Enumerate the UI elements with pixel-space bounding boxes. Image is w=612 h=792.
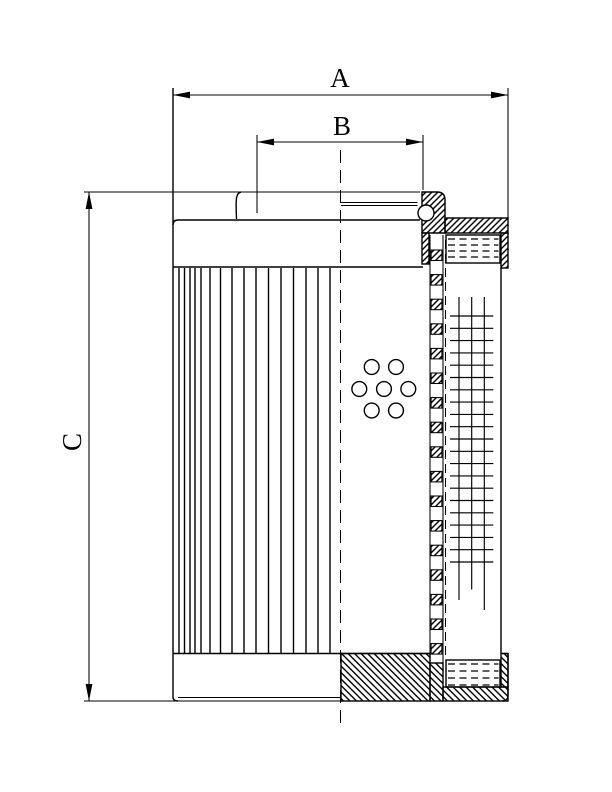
perforation-hole [352,382,367,397]
core-wall-segment [431,299,442,310]
perforation-hole [401,382,416,397]
core-wall-segment [431,521,442,532]
top-fitting-right-wall [501,233,508,268]
core-wall-segment [431,619,442,630]
perforation-holes [352,360,416,418]
thread-lines-top [448,239,499,257]
bottom-cap-hatch-under-bore [443,687,508,701]
bottom-cap-hatch-right-wall [501,654,508,688]
perforation-hole [377,382,392,397]
dim-c-arrow-bottom [86,684,93,701]
body-bottom-left-corner [173,697,178,701]
core-wall-segment [431,447,442,458]
bottom-cap-hatch-under-core [430,663,443,701]
section-view [341,192,508,701]
core-wall-segment [431,471,442,482]
core-tube [430,235,446,663]
perforation-hole [364,360,379,375]
core-wall-segment [431,594,442,605]
core-tube-wall-segments [431,250,442,654]
dim-b-arrow-left [257,139,274,146]
top-flange [445,218,508,233]
perforation-hole [364,403,379,418]
dim-a-arrow-left [173,92,190,99]
core-wall-segment [431,348,442,359]
bottom-cap-hatch-left [341,654,430,702]
core-wall-segment [431,250,442,261]
pleated-media [179,268,330,654]
drawing-page: A B C [0,0,612,792]
perforation-hole [389,403,404,418]
dimension-b-label: B [333,111,351,141]
core-wall-segment [431,422,442,433]
dim-a-arrow-right [491,92,508,99]
support-mesh [450,297,493,610]
dim-c-arrow-top [86,192,93,209]
dim-b-arrow-right [406,139,423,146]
core-wall-segment [431,570,442,581]
top-cap-top-edge [173,220,420,225]
thread-lines-bottom [448,664,499,685]
o-ring [418,205,434,221]
core-wall-segment [431,644,442,655]
drawing-root: A B C [57,63,508,727]
bottom-end-cap-section [341,654,508,702]
filter-element-technical-drawing: A B C [0,0,612,792]
core-wall-segment [431,373,442,384]
core-wall-segment [431,398,442,409]
core-wall-segment [431,545,442,556]
top-fitting-left-wall [422,233,429,264]
dimension-a-label: A [330,63,350,93]
core-wall-segment [431,324,442,335]
perforation-hole [389,360,404,375]
core-wall-segment [431,275,442,286]
dimension-c-label: C [57,433,87,451]
core-wall-segment [431,496,442,507]
top-collar-left-curve [236,192,241,219]
